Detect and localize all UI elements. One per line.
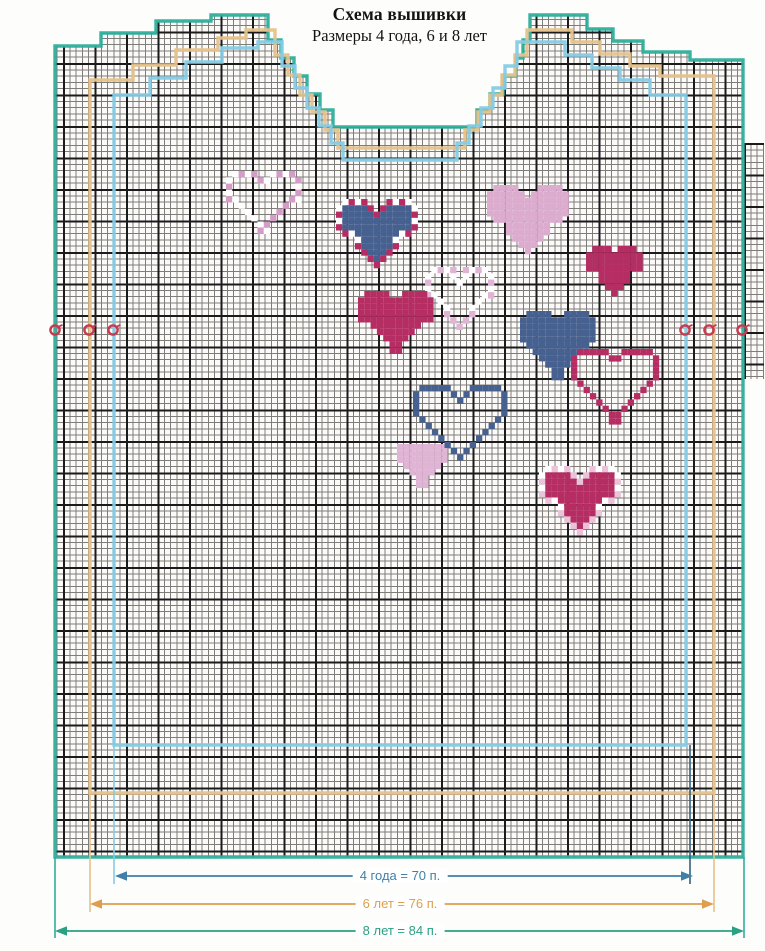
- heart-6-pixel: [552, 343, 558, 349]
- heart-3-pixel: [611, 271, 617, 277]
- heart-6-pixel: [533, 349, 539, 355]
- heart-1-pixel: [412, 224, 418, 230]
- heart-2-pixel: [500, 185, 506, 191]
- heart-7-pixel: [634, 349, 640, 355]
- heart-5-pixel: [383, 323, 389, 329]
- heart-7-pixel: [584, 349, 590, 355]
- heart-0-pixel: [264, 221, 270, 227]
- heart-3-pixel: [586, 265, 592, 271]
- heart-10-pixel: [539, 491, 545, 497]
- heart-0-pixel: [295, 190, 301, 196]
- heart-6-pixel: [583, 343, 589, 349]
- heart-10-pixel: [539, 472, 545, 478]
- heart-0-pixel: [283, 171, 289, 177]
- heart-6-pixel: [570, 311, 576, 317]
- heart-9-pixel: [476, 385, 482, 391]
- heart-6-pixel: [558, 324, 564, 330]
- heart-9-pixel: [445, 442, 451, 448]
- heart-5-pixel: [390, 304, 396, 310]
- heart-3-pixel: [624, 271, 630, 277]
- heart-2-pixel: [531, 229, 537, 235]
- heart-7-pixel: [596, 349, 602, 355]
- heart-2-pixel: [500, 217, 506, 223]
- heart-10-pixel: [545, 479, 551, 485]
- heart-2-pixel: [519, 223, 525, 229]
- heart-9-pixel: [451, 448, 457, 454]
- size-outline-6-лет: [90, 30, 714, 793]
- heart-6-pixel: [564, 324, 570, 330]
- heart-1-pixel: [355, 205, 361, 211]
- heart-9-pixel: [413, 398, 419, 404]
- heart-2-pixel: [506, 198, 512, 204]
- heart-3-pixel: [605, 278, 611, 284]
- heart-1-pixel: [380, 243, 386, 249]
- heart-2-pixel: [512, 191, 518, 197]
- heart-1-pixel: [361, 199, 367, 205]
- heart-0-pixel: [270, 171, 276, 177]
- heart-5-pixel: [371, 310, 377, 316]
- heart-1-pixel: [355, 243, 361, 249]
- heart-1-pixel: [380, 231, 386, 237]
- heart-5-pixel: [390, 297, 396, 303]
- heart-6-pixel: [526, 336, 532, 342]
- heart-8-pixel: [403, 444, 409, 450]
- heart-1-pixel: [386, 237, 392, 243]
- heart-3-pixel: [611, 265, 617, 271]
- heart-5-pixel: [390, 310, 396, 316]
- heart-5-pixel: [396, 310, 402, 316]
- heart-4-pixel: [488, 286, 494, 292]
- heart-4-pixel: [425, 280, 431, 286]
- heart-10-pixel: [558, 504, 564, 510]
- heart-2-pixel: [544, 191, 550, 197]
- heart-0-pixel: [270, 215, 276, 221]
- heart-10-pixel: [564, 466, 570, 472]
- heart-1-pixel: [405, 212, 411, 218]
- heart-1-pixel: [393, 205, 399, 211]
- heart-1-pixel: [342, 199, 348, 205]
- heart-9-pixel: [445, 385, 451, 391]
- heart-3-pixel: [611, 278, 617, 284]
- heart-10-pixel: [608, 466, 614, 472]
- heart-6-pixel: [564, 343, 570, 349]
- heart-9-pixel: [413, 391, 419, 397]
- size-8-dimension-label: 8 лет = 84 п.: [356, 923, 445, 938]
- heart-10-pixel: [589, 466, 595, 472]
- heart-10-pixel: [583, 504, 589, 510]
- heart-8-pixel: [422, 450, 428, 456]
- heart-6-pixel: [564, 317, 570, 323]
- heart-1-pixel: [361, 249, 367, 255]
- heart-6-pixel: [526, 311, 532, 317]
- heart-3-pixel: [618, 252, 624, 258]
- heart-8-pixel: [416, 450, 422, 456]
- heart-10-pixel: [602, 466, 608, 472]
- heart-8-pixel: [403, 463, 409, 469]
- heart-8-pixel: [397, 457, 403, 463]
- row-marker-tail: [92, 325, 96, 327]
- heart-1-pixel: [349, 205, 355, 211]
- heart-8-pixel: [416, 476, 422, 482]
- heart-6-pixel: [552, 374, 558, 380]
- heart-1-pixel: [386, 249, 392, 255]
- heart-7-pixel: [621, 349, 627, 355]
- heart-5-pixel: [408, 304, 414, 310]
- heart-6-pixel: [539, 324, 545, 330]
- heart-9-pixel: [470, 385, 476, 391]
- heart-10-pixel: [571, 504, 577, 510]
- heart-2-pixel: [537, 204, 543, 210]
- heart-4-pixel: [450, 317, 456, 323]
- heart-6-pixel: [564, 330, 570, 336]
- heart-2-pixel: [550, 191, 556, 197]
- heart-10-pixel: [577, 485, 583, 491]
- heart-9-pixel: [501, 410, 507, 416]
- heart-10-pixel: [545, 491, 551, 497]
- heart-3-pixel: [624, 246, 630, 252]
- heart-7-pixel: [647, 349, 653, 355]
- heart-1-pixel: [342, 231, 348, 237]
- heart-6-pixel: [539, 336, 545, 342]
- heart-5-pixel: [377, 291, 383, 297]
- heart-1-pixel: [361, 205, 367, 211]
- heart-10-pixel: [571, 498, 577, 504]
- heart-6-pixel: [545, 317, 551, 323]
- heart-10-pixel: [583, 498, 589, 504]
- heart-1-pixel: [336, 224, 342, 230]
- heart-10-pixel: [571, 491, 577, 497]
- heart-9-pixel: [438, 435, 444, 441]
- heart-5-pixel: [415, 323, 421, 329]
- heart-1-pixel: [374, 249, 380, 255]
- heart-2-pixel: [537, 198, 543, 204]
- heart-2-pixel: [544, 210, 550, 216]
- heart-5-pixel: [415, 297, 421, 303]
- chart-title: Схема вышивки: [34, 4, 765, 25]
- heart-1-pixel: [361, 231, 367, 237]
- heart-7-pixel: [628, 399, 634, 405]
- heart-2-pixel: [525, 223, 531, 229]
- heart-6-pixel: [545, 324, 551, 330]
- embroidery-chart-page: Схема вышивки Размеры 4 года, 6 и 8 лет …: [0, 0, 765, 951]
- heart-1-pixel: [399, 205, 405, 211]
- heart-5-pixel: [402, 316, 408, 322]
- heart-2-pixel: [506, 185, 512, 191]
- heart-6-pixel: [589, 330, 595, 336]
- heart-10-pixel: [558, 485, 564, 491]
- heart-2-pixel: [519, 204, 525, 210]
- heart-1-pixel: [393, 243, 399, 249]
- heart-6-pixel: [520, 324, 526, 330]
- heart-2-pixel: [512, 185, 518, 191]
- heart-4-pixel: [457, 324, 463, 330]
- heart-9-pixel: [489, 385, 495, 391]
- heart-4-pixel: [482, 292, 488, 298]
- heart-8-pixel: [416, 482, 422, 488]
- heart-1-pixel: [386, 205, 392, 211]
- heart-2-pixel: [519, 191, 525, 197]
- heart-5-pixel: [390, 341, 396, 347]
- heart-4-pixel: [438, 267, 444, 273]
- heart-6-pixel: [564, 336, 570, 342]
- heart-1-pixel: [399, 218, 405, 224]
- heart-3-pixel: [599, 271, 605, 277]
- heart-7-pixel: [603, 349, 609, 355]
- heart-1-pixel: [349, 199, 355, 205]
- heart-5-pixel: [415, 291, 421, 297]
- heart-9-pixel: [432, 429, 438, 435]
- heart-2-pixel: [512, 198, 518, 204]
- heart-0-pixel: [295, 196, 301, 202]
- heart-6-pixel: [533, 324, 539, 330]
- heart-0-pixel: [226, 177, 232, 183]
- heart-9-pixel: [476, 435, 482, 441]
- heart-5-pixel: [390, 323, 396, 329]
- heart-3-pixel: [605, 284, 611, 290]
- heart-4-pixel: [469, 305, 475, 311]
- size-6-dimension-label: 6 лет = 76 п.: [356, 896, 445, 911]
- heart-6-pixel: [558, 361, 564, 367]
- heart-5-pixel: [383, 329, 389, 335]
- heart-1-pixel: [355, 199, 361, 205]
- heart-2-pixel: [493, 185, 499, 191]
- heart-3-pixel: [618, 284, 624, 290]
- heart-5-pixel: [402, 291, 408, 297]
- heart-10-pixel: [564, 472, 570, 478]
- heart-0-pixel: [226, 196, 232, 202]
- heart-2-pixel: [487, 204, 493, 210]
- heart-3-pixel: [611, 284, 617, 290]
- heart-7-pixel: [628, 349, 634, 355]
- heart-1-pixel: [405, 199, 411, 205]
- heart-1-pixel: [342, 205, 348, 211]
- heart-8-pixel: [435, 463, 441, 469]
- heart-5-pixel: [358, 297, 364, 303]
- heart-7-pixel: [609, 355, 615, 361]
- heart-0-pixel: [239, 171, 245, 177]
- heart-1-pixel: [355, 237, 361, 243]
- heart-5-pixel: [408, 316, 414, 322]
- heart-5-pixel: [408, 310, 414, 316]
- heart-8-pixel: [435, 450, 441, 456]
- heart-2-pixel: [500, 191, 506, 197]
- heart-1-pixel: [355, 224, 361, 230]
- heart-5-pixel: [396, 348, 402, 354]
- heart-1-pixel: [368, 205, 374, 211]
- heart-4-pixel: [438, 299, 444, 305]
- arrow-head-right: [702, 899, 714, 909]
- heart-1-pixel: [393, 212, 399, 218]
- heart-2-pixel: [531, 191, 537, 197]
- heart-9-pixel: [495, 417, 501, 423]
- row-marker-tail: [688, 325, 692, 327]
- heart-1-pixel: [336, 218, 342, 224]
- heart-5-pixel: [377, 310, 383, 316]
- heart-9-pixel: [432, 385, 438, 391]
- heart-1-pixel: [342, 218, 348, 224]
- heart-5-pixel: [396, 329, 402, 335]
- heart-2-pixel: [544, 217, 550, 223]
- row-marker-tail: [58, 325, 62, 327]
- heart-10-pixel: [564, 479, 570, 485]
- heart-2-pixel: [531, 204, 537, 210]
- heart-7-pixel: [577, 381, 583, 387]
- heart-5-pixel: [427, 297, 433, 303]
- heart-2-pixel: [550, 198, 556, 204]
- heart-2-pixel: [563, 210, 569, 216]
- arrow-head-right: [681, 871, 693, 881]
- heart-8-pixel: [429, 469, 435, 475]
- heart-2-pixel: [550, 204, 556, 210]
- heart-2-pixel: [550, 185, 556, 191]
- chart-overlay-svg: [0, 0, 765, 951]
- heart-10-pixel: [571, 472, 577, 478]
- heart-9-pixel: [438, 385, 444, 391]
- heart-4-pixel: [431, 267, 437, 273]
- heart-1-pixel: [342, 224, 348, 230]
- heart-0-pixel: [226, 190, 232, 196]
- heart-6-pixel: [564, 349, 570, 355]
- heart-6-pixel: [564, 311, 570, 317]
- heart-0-pixel: [295, 177, 301, 183]
- heart-1-pixel: [355, 218, 361, 224]
- heart-2-pixel: [493, 204, 499, 210]
- heart-1-pixel: [380, 249, 386, 255]
- heart-6-pixel: [570, 330, 576, 336]
- heart-4-pixel: [444, 267, 450, 273]
- heart-6-pixel: [526, 330, 532, 336]
- heart-2-pixel: [519, 210, 525, 216]
- heart-6-pixel: [552, 336, 558, 342]
- heart-1-pixel: [393, 224, 399, 230]
- heart-2-pixel: [519, 235, 525, 241]
- heart-5-pixel: [377, 304, 383, 310]
- heart-5-pixel: [390, 335, 396, 341]
- heart-6-pixel: [520, 330, 526, 336]
- heart-4-pixel: [444, 311, 450, 317]
- heart-7-pixel: [653, 355, 659, 361]
- heart-3-pixel: [624, 265, 630, 271]
- heart-2-pixel: [531, 223, 537, 229]
- heart-6-pixel: [583, 311, 589, 317]
- heart-10-pixel: [589, 491, 595, 497]
- heart-2-pixel: [550, 210, 556, 216]
- heart-3-pixel: [605, 271, 611, 277]
- heart-10-pixel: [583, 485, 589, 491]
- heart-2-pixel: [525, 229, 531, 235]
- heart-9-pixel: [457, 398, 463, 404]
- heart-6-pixel: [552, 324, 558, 330]
- heart-2-pixel: [556, 185, 562, 191]
- heart-6-pixel: [545, 343, 551, 349]
- heart-9-pixel: [451, 391, 457, 397]
- heart-2-pixel: [537, 235, 543, 241]
- arrow-head-left: [55, 926, 67, 936]
- heart-2-pixel: [556, 204, 562, 210]
- heart-1-pixel: [386, 224, 392, 230]
- heart-1-pixel: [355, 212, 361, 218]
- heart-4-pixel: [469, 267, 475, 273]
- heart-5-pixel: [427, 310, 433, 316]
- heart-3-pixel: [618, 246, 624, 252]
- heart-2-pixel: [525, 217, 531, 223]
- heart-10-pixel: [558, 491, 564, 497]
- heart-1-pixel: [380, 237, 386, 243]
- heart-4-pixel: [444, 305, 450, 311]
- heart-2-pixel: [531, 242, 537, 248]
- heart-1-pixel: [336, 205, 342, 211]
- heart-5-pixel: [377, 316, 383, 322]
- heart-10-pixel: [615, 485, 621, 491]
- heart-6-pixel: [558, 355, 564, 361]
- heart-5-pixel: [421, 304, 427, 310]
- heart-10-pixel: [552, 479, 558, 485]
- heart-3-pixel: [618, 259, 624, 265]
- heart-5-pixel: [358, 316, 364, 322]
- heart-3-pixel: [636, 259, 642, 265]
- heart-2-pixel: [487, 210, 493, 216]
- heart-0-pixel: [245, 209, 251, 215]
- heart-0-pixel: [258, 177, 264, 183]
- size-4-dimension-label: 4 года = 70 п.: [353, 868, 448, 883]
- heart-7-pixel: [621, 406, 627, 412]
- heart-2-pixel: [556, 210, 562, 216]
- heart-5-pixel: [390, 329, 396, 335]
- heart-9-pixel: [482, 429, 488, 435]
- heart-5-pixel: [402, 304, 408, 310]
- heart-6-pixel: [558, 336, 564, 342]
- heart-2-pixel: [519, 229, 525, 235]
- heart-1-pixel: [368, 249, 374, 255]
- heart-10-pixel: [577, 510, 583, 516]
- heart-10-pixel: [583, 510, 589, 516]
- heart-2-pixel: [512, 229, 518, 235]
- heart-6-pixel: [564, 361, 570, 367]
- heart-3-pixel: [599, 259, 605, 265]
- heart-9-pixel: [413, 410, 419, 416]
- heart-5-pixel: [415, 316, 421, 322]
- heart-10-pixel: [589, 516, 595, 522]
- heart-6-pixel: [589, 317, 595, 323]
- heart-6-pixel: [570, 324, 576, 330]
- heart-1-pixel: [393, 237, 399, 243]
- heart-4-pixel: [450, 273, 456, 279]
- heart-2-pixel: [493, 191, 499, 197]
- heart-3-pixel: [586, 252, 592, 258]
- heart-5-pixel: [421, 291, 427, 297]
- heart-10-pixel: [564, 485, 570, 491]
- heart-2-pixel: [544, 204, 550, 210]
- heart-9-pixel: [457, 454, 463, 460]
- heart-8-pixel: [429, 457, 435, 463]
- heart-8-pixel: [422, 444, 428, 450]
- heart-5-pixel: [396, 316, 402, 322]
- heart-4-pixel: [475, 299, 481, 305]
- heart-6-pixel: [539, 355, 545, 361]
- heart-7-pixel: [596, 399, 602, 405]
- arrow-head-left: [115, 871, 127, 881]
- heart-5-pixel: [364, 297, 370, 303]
- heart-2-pixel: [556, 217, 562, 223]
- heart-5-pixel: [408, 291, 414, 297]
- heart-6-pixel: [533, 317, 539, 323]
- heart-6-pixel: [558, 374, 564, 380]
- heart-8-pixel: [422, 463, 428, 469]
- heart-1-pixel: [405, 231, 411, 237]
- heart-10-pixel: [552, 491, 558, 497]
- heart-3-pixel: [592, 259, 598, 265]
- heart-10-pixel: [583, 479, 589, 485]
